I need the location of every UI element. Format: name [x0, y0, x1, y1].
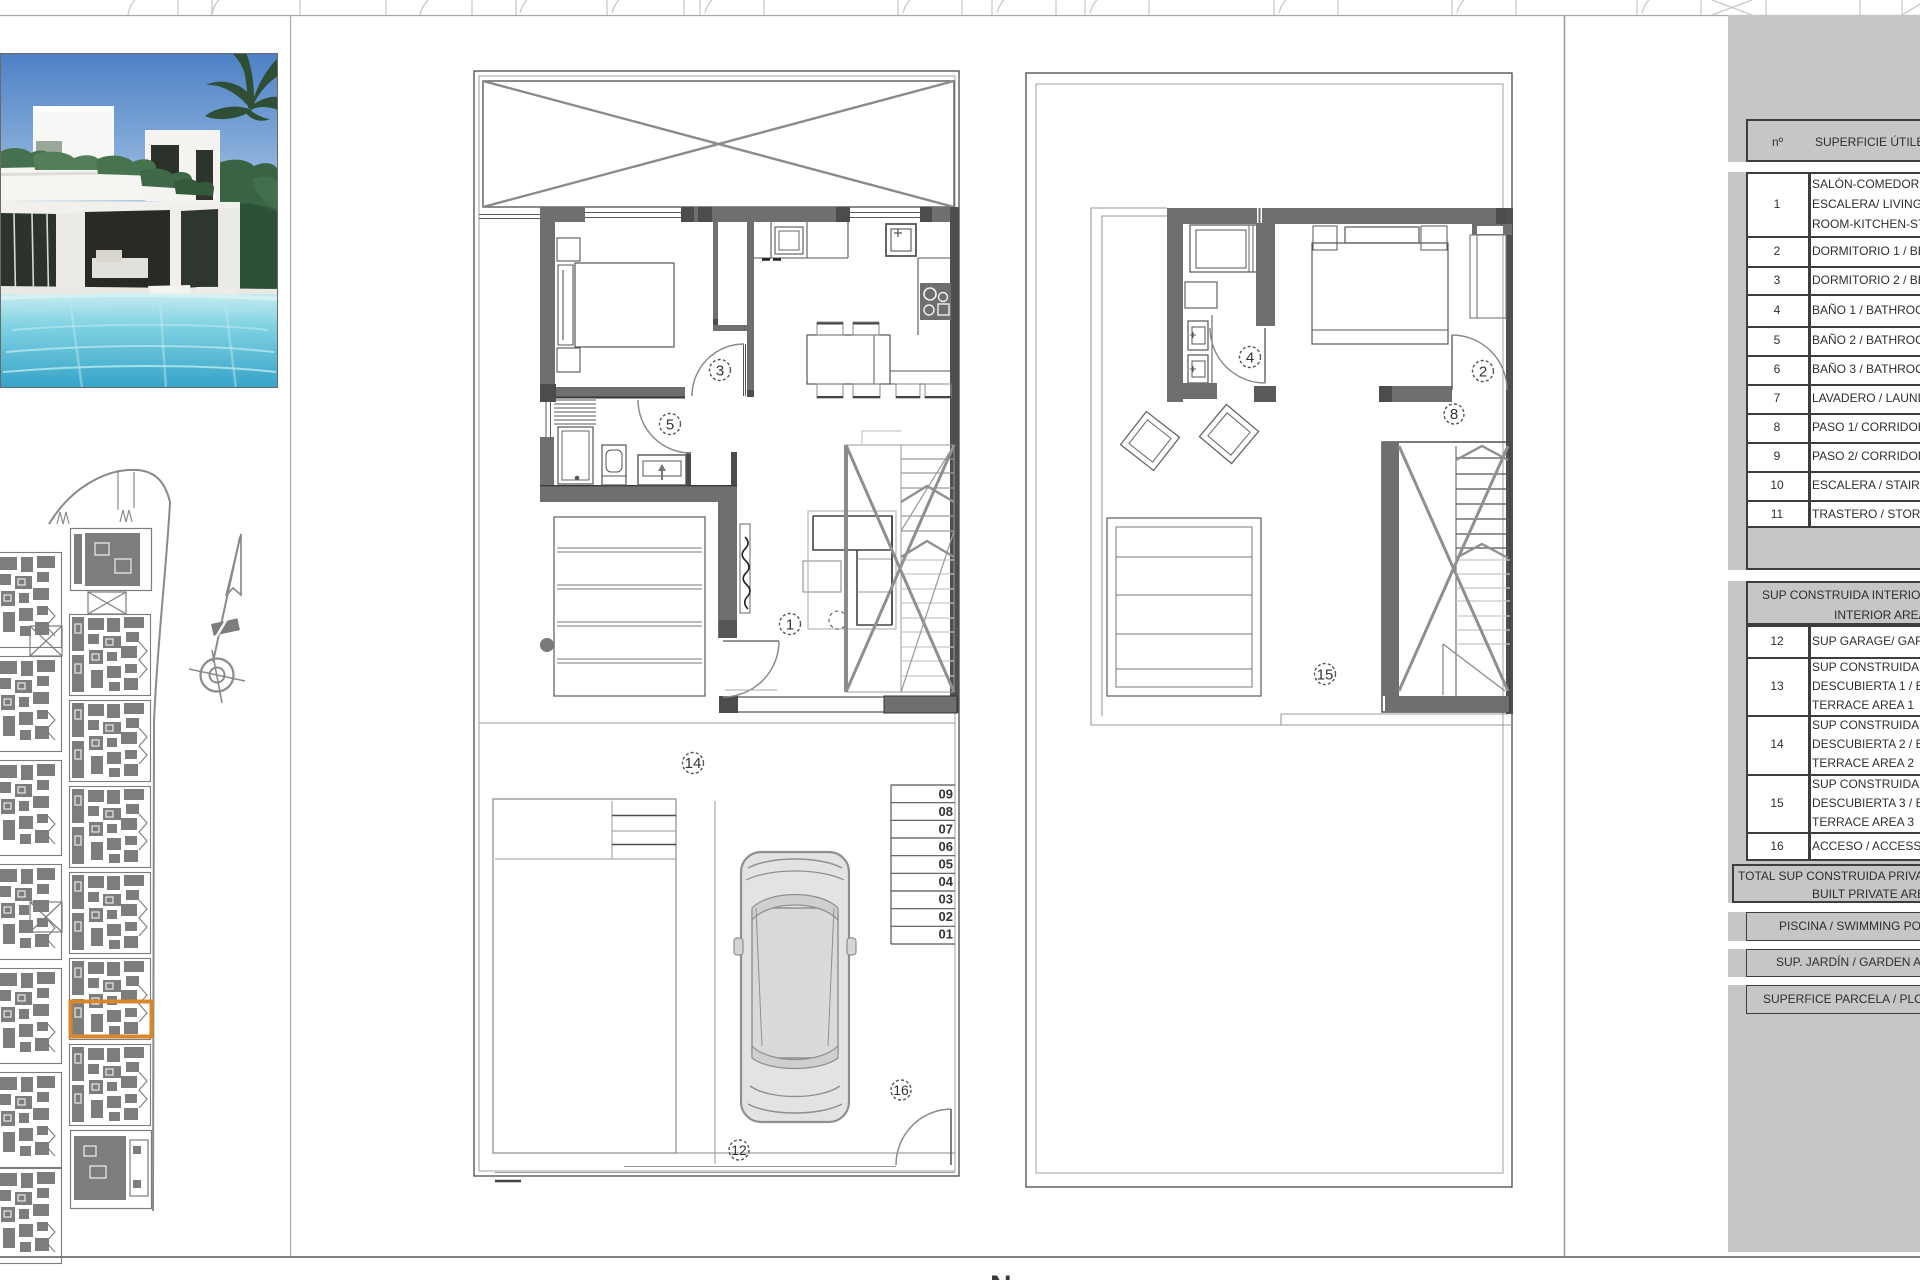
svg-text:3: 3 [716, 363, 724, 380]
svg-text:05: 05 [939, 857, 953, 872]
svg-text:15: 15 [1317, 667, 1334, 684]
svg-text:14: 14 [685, 755, 702, 772]
svg-text:N: N [990, 1270, 1012, 1280]
svg-text:08: 08 [939, 804, 953, 819]
svg-text:8: 8 [1450, 406, 1458, 423]
svg-text:06: 06 [939, 839, 953, 854]
svg-text:2: 2 [1479, 364, 1487, 381]
svg-text:02: 02 [939, 909, 953, 924]
svg-text:07: 07 [939, 822, 953, 837]
svg-text:01: 01 [939, 927, 953, 942]
svg-text:16: 16 [893, 1082, 909, 1098]
svg-text:03: 03 [939, 892, 953, 907]
svg-text:12: 12 [731, 1142, 747, 1158]
svg-text:04: 04 [939, 874, 954, 889]
svg-text:1: 1 [786, 617, 794, 634]
svg-text:4: 4 [1246, 350, 1254, 367]
svg-text:09: 09 [939, 787, 953, 802]
svg-text:5: 5 [666, 417, 674, 434]
